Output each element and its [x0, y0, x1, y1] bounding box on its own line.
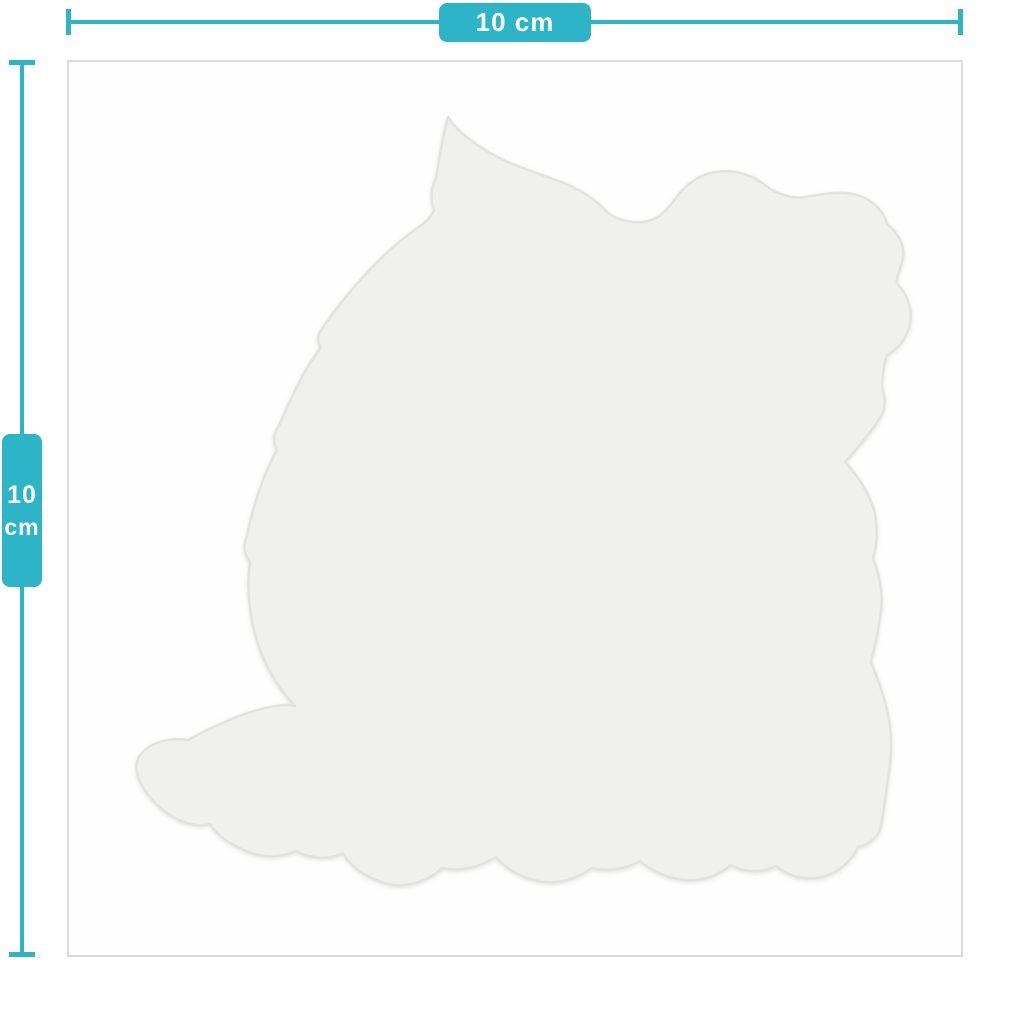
product-mockup-stage: 10 cm 10 cm	[0, 0, 1024, 1024]
width-dimension-text: 10 cm	[476, 7, 555, 38]
height-dimension-value: 10	[7, 483, 37, 508]
height-dimension-label: 10 cm	[2, 434, 42, 587]
height-dimension-top-cap	[9, 60, 35, 65]
sticker-sheet	[67, 60, 963, 957]
height-dimension-bottom-cap	[9, 952, 35, 957]
width-dimension-right-cap	[958, 9, 963, 35]
width-dimension-left-cap	[66, 9, 71, 35]
width-dimension-label: 10 cm	[439, 3, 591, 42]
height-dimension-unit: cm	[4, 516, 39, 539]
